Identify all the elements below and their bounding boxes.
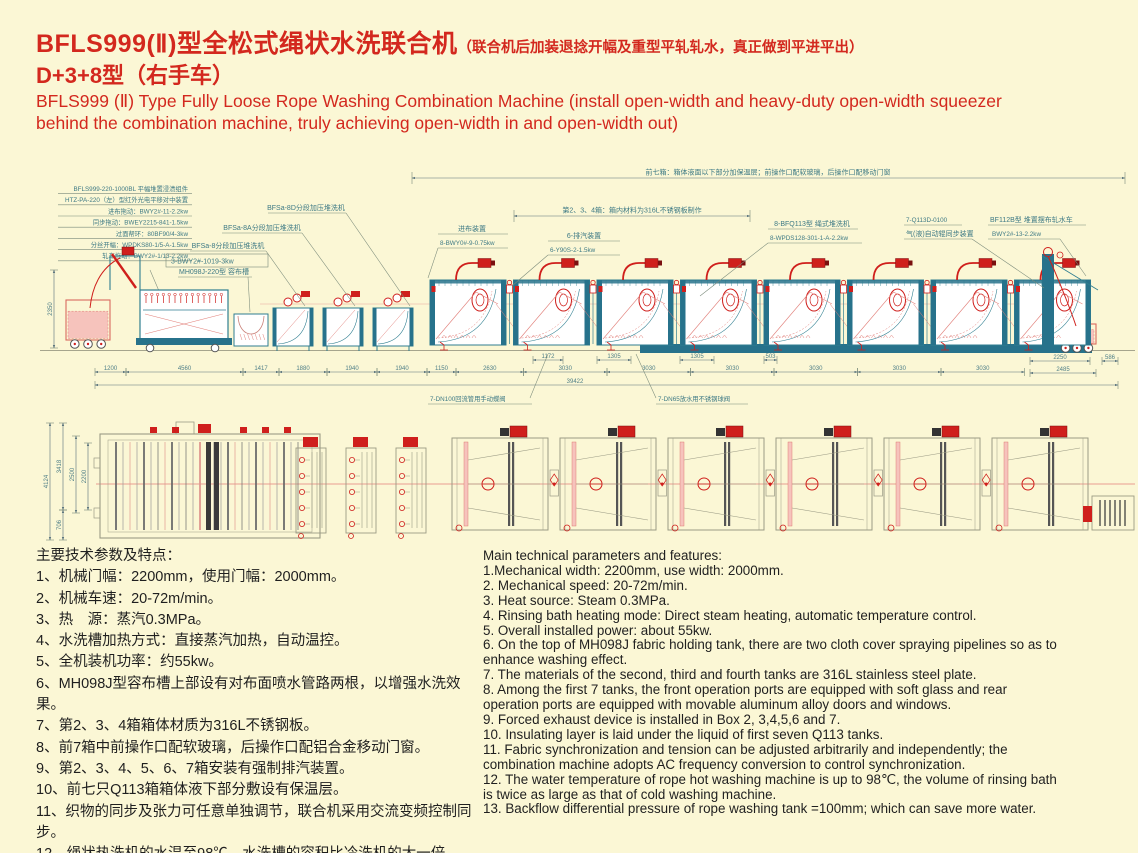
plan-valve [399, 505, 404, 510]
legend-stack: BFLS999-220-1000BL 平幅堆置浸渍组件HTZ-PA-220（左）… [58, 184, 192, 298]
exhaust-valve [674, 285, 680, 293]
dimension-value: 3030 [559, 366, 573, 372]
plan-rope [1008, 448, 1080, 460]
dimension-value: 2630 [483, 366, 497, 372]
title-zh-note: （联合机后加装退捻开幅及重型平轧轧水，真正做到平进平出） [457, 40, 863, 56]
plan-rope [468, 448, 540, 460]
exhaust-cap [925, 280, 929, 284]
squeezer-washer [373, 308, 413, 346]
valve [766, 286, 770, 292]
trolley-liquid [68, 311, 108, 338]
valve [432, 286, 436, 292]
note-tanks234: 第2、3、4箱：箱内材料为316L不锈钢板制作 [562, 206, 701, 215]
param-item-zh: 11、织物的同步及张力可任意单独调节，联合机采用交流变频控制同步。 [36, 802, 488, 845]
motor [122, 247, 134, 255]
legend-row: BFLS999-220-1000BL 平幅堆置浸渍组件 [73, 184, 188, 193]
plan-roller-pink [896, 442, 900, 526]
callout-bfsa8: BFSa-8分段加压堆洗机 [192, 241, 265, 250]
motor-cap [716, 428, 725, 436]
callout-paiqi: 6-排汽装置 [567, 231, 601, 240]
dimension-value: 1880 [296, 366, 310, 372]
motor-cap [608, 428, 617, 436]
dimension-value: 2485 [1056, 367, 1070, 373]
motor [303, 437, 318, 447]
motor [1083, 506, 1092, 522]
motor [262, 427, 269, 433]
machine-wheel [211, 344, 219, 352]
plan-bracket [94, 508, 100, 518]
washer-post [273, 308, 277, 346]
motor [1050, 426, 1067, 437]
leader-line [428, 248, 438, 278]
plan-rope [792, 508, 864, 520]
plan-roller-pink [464, 442, 468, 526]
tank-post [1002, 280, 1007, 345]
plan-roller-pink [572, 442, 576, 526]
motor [198, 424, 211, 433]
plan-washer [296, 448, 326, 533]
plan-roller-pink [788, 442, 792, 526]
tank-post [835, 280, 840, 345]
valve [1016, 286, 1020, 292]
page-title: BFLS999(Ⅱ)型全松式绳状水洗联合机（联合机后加装退捻开幅及重型平轧轧水，… [36, 24, 863, 60]
dimension-value: 3418 [57, 459, 63, 473]
valve [933, 286, 937, 292]
dimension-value: 1200 [104, 366, 118, 372]
plan-valve [349, 521, 354, 526]
squeezer-washer [273, 308, 313, 346]
motor [284, 427, 291, 433]
plan-pump [399, 534, 404, 539]
param-item-en: 3. Heat source: Steam 0.3MPa. [483, 594, 1063, 609]
fabric-trough [234, 314, 268, 346]
callout-bfsa8d: BFSa-8D分段加压堆洗机 [267, 203, 345, 212]
param-item-en: 9. Forced exhaust device is installed in… [483, 713, 1063, 728]
params-zh-list: 1、机械门幅：2200mm，使用门幅：2000mm。2、机械车速：20-72m/… [36, 567, 488, 853]
plan-valve [399, 521, 404, 526]
plan-valve [299, 473, 304, 478]
plan-rope [684, 448, 756, 460]
params-en: Main technical parameters and features: … [483, 549, 1063, 817]
plan-rope [684, 508, 756, 520]
callout-bfq113: 8-BFQ113型 绳式堆洗机 [774, 219, 850, 228]
param-item-zh: 3、热 源：蒸汽0.3MPa。 [36, 610, 488, 631]
machine-wheel [146, 344, 154, 352]
squeeze-roller [293, 294, 301, 302]
exhaust-valve [841, 285, 847, 293]
dimension-value: 39422 [567, 379, 584, 385]
plan-rope [792, 448, 864, 460]
plan-end-unit [1092, 496, 1134, 530]
exhaust-cap [841, 280, 845, 284]
plan-washer [346, 448, 376, 533]
callout-motor3: 3-BWY2#-1019-3kw [171, 259, 235, 266]
plan-dark-roller [206, 442, 211, 530]
valve [515, 286, 519, 292]
callout-bfq113-sub: 8-WPDS128-301-1-A-2.2kw [770, 235, 848, 242]
tank-post [585, 280, 590, 345]
washer-post [323, 308, 327, 346]
wheel-hub [100, 343, 102, 345]
title-zh: BFLS999(Ⅱ)型全松式绳状水洗联合机 [36, 30, 457, 58]
exhaust-cap [1008, 280, 1012, 284]
pulley [1057, 252, 1063, 258]
legend-row: 同步拖动：BWEY2215-841-1.5kw [93, 218, 189, 227]
tank-post [919, 280, 924, 345]
title-en: BFLS999 (Ⅱ) Type Fully Loose Rope Washin… [36, 90, 1036, 134]
plan-valve [349, 489, 354, 494]
plan-bracket [94, 458, 100, 468]
wheel-hub [74, 343, 76, 345]
plan-rope [576, 448, 648, 460]
motor-cap [825, 261, 829, 266]
plan-rope [1008, 508, 1080, 520]
callout-mh098j: MH098J-220型 容布槽 [179, 267, 249, 276]
steam-pipe [874, 263, 896, 280]
param-item-zh: 8、前7箱中前操作口配软玻璃，后操作口配铝合金移动门窗。 [36, 738, 488, 759]
plan-rope [576, 508, 648, 520]
dimension-value: 1305 [690, 354, 704, 360]
motor [301, 291, 310, 297]
plan-rope [900, 508, 972, 520]
technical-diagram: BFLS999-220-1000BL 平幅堆置浸渍组件HTZ-PA-220（左）… [0, 158, 1138, 550]
dimension-value: 1172 [542, 354, 556, 360]
motor-cap [824, 428, 833, 436]
motor [896, 259, 909, 268]
washer-post [373, 308, 377, 346]
subtitle-zh: D+3+8型（右手车） [36, 58, 234, 90]
param-item-zh: 2、机械车速：20-72m/min。 [36, 589, 488, 610]
param-item-zh: 1、机械门幅：2200mm，使用门幅：2000mm。 [36, 567, 488, 588]
plan-valve [299, 521, 304, 526]
plan-pump [349, 534, 354, 539]
tank-post [752, 280, 757, 345]
plan-valve [399, 457, 404, 462]
exhaust-cap [674, 280, 678, 284]
connector-dot [769, 483, 772, 486]
motor-cap [992, 261, 996, 266]
steam-pipe [623, 263, 645, 280]
plan-valve [399, 473, 404, 478]
dimension-value: 1940 [345, 366, 359, 372]
param-item-en: 2. Mechanical speed: 20-72m/min. [483, 579, 1063, 594]
param-item-en: 8. Among the first 7 tanks, the front op… [483, 683, 1063, 713]
motor [729, 259, 742, 268]
leader-line [266, 251, 305, 306]
motor [478, 259, 491, 268]
wheel-hub [87, 343, 89, 345]
plan-roller-pink [1004, 442, 1008, 526]
dimension-value: 503 [765, 354, 776, 360]
param-item-zh: 4、水洗槽加热方式：直接蒸汽加热，自动温控。 [36, 631, 488, 652]
dimension-value: 3030 [642, 366, 656, 372]
dimension-value: 4560 [178, 366, 192, 372]
motor [645, 259, 658, 268]
motor [942, 426, 959, 437]
motor-cap [1040, 428, 1049, 436]
motor [834, 426, 851, 437]
squeeze-roller [334, 298, 342, 306]
connector-dot [553, 483, 556, 486]
dimension-value: 586 [1105, 355, 1116, 361]
motor [618, 426, 635, 437]
param-item-zh: 12、绳状热洗机的水温至98℃，水洗槽的容积比冷洗机的大一倍。 [36, 844, 488, 853]
dimension-value: 4124 [44, 474, 50, 488]
param-item-en: 6. On the top of MH098J fabric holding t… [483, 638, 1063, 668]
steam-pipe [540, 263, 562, 280]
param-item-en: 11. Fabric synchronization and tension c… [483, 743, 1063, 773]
tank-post [501, 280, 506, 345]
valve [682, 286, 686, 292]
leader-line [248, 277, 250, 312]
motor-cap [575, 261, 579, 266]
params-en-list: 1.Mechanical width: 2200mm, use width: 2… [483, 564, 1063, 817]
dimension-value: 2250 [1053, 355, 1067, 361]
catalog-page: BFLS999(Ⅱ)型全松式绳状水洗联合机（联合机后加装退捻开幅及重型平轧轧水，… [0, 0, 1138, 853]
param-item-en: 12. The water temperature of rope hot wa… [483, 773, 1063, 803]
motor [353, 437, 368, 447]
end-frame-column [1042, 254, 1054, 346]
motor [401, 291, 410, 297]
motor-cap [909, 261, 913, 266]
param-item-zh: 7、第2、3、4箱箱体材质为316L不锈钢板。 [36, 716, 488, 737]
plan-valve [349, 457, 354, 462]
legend-row: 过面帮环：80BF90/4-3kw [116, 229, 189, 238]
dimension-value: 3030 [976, 366, 990, 372]
params-zh: 主要技术参数及特点： 1、机械门幅：2200mm，使用门幅：2000mm。2、机… [36, 546, 488, 853]
dimension-value: 1305 [607, 354, 621, 360]
param-item-en: 5. Overall installed power: about 55kw. [483, 624, 1063, 639]
motor [403, 437, 418, 447]
leader-line [636, 354, 656, 398]
motor [351, 291, 360, 297]
plan-roller-pink [680, 442, 684, 526]
valve [849, 286, 853, 292]
dimension-value: 706 [57, 519, 63, 530]
steam-pipe [707, 263, 729, 280]
motor [726, 426, 743, 437]
wheel-hub [1087, 347, 1089, 349]
exhaust-valve [1008, 285, 1014, 293]
callout-bf112b-sub: BWY2#-13-2.2kw [992, 231, 1041, 238]
washer-post [360, 308, 364, 346]
callout-bfsa8a: BFSa-8A分段加压堆洗机 [223, 223, 300, 232]
motor [240, 427, 247, 433]
exhaust-valve [757, 285, 763, 293]
motor [1063, 259, 1076, 268]
plan-valve [399, 489, 404, 494]
param-item-en: 13. Backflow differential pressure of ro… [483, 802, 1063, 817]
motor [812, 259, 825, 268]
washer-post [410, 308, 414, 346]
exhaust-valve [507, 285, 513, 293]
dimension-value: 1417 [254, 366, 268, 372]
param-item-zh: 9、第2、3、4、5、6、7箱安装有强制排汽装置。 [36, 759, 488, 780]
param-item-en: 7. The materials of the second, third an… [483, 668, 1063, 683]
dimension-value: 2500 [70, 467, 76, 481]
wheel-hub [1076, 347, 1078, 349]
legend-row: HTZ-PA-220（左）型红外光电平移对中装置 [65, 195, 188, 204]
legend-row: 进布拖动：BWY2#-11-2.2kw [108, 206, 188, 215]
param-item-zh: 5、全机装机功率：约55kw。 [36, 652, 488, 673]
param-item-zh: 10、前七只Q113箱箱体液下部分敷设有保温层。 [36, 780, 488, 801]
connector-dot [877, 483, 880, 486]
motor [979, 259, 992, 268]
tank-post [668, 280, 673, 345]
callout-q113d: 7-Q113D-0100 [906, 217, 948, 224]
plan-valve [299, 489, 304, 494]
dimension-value: 2350 [48, 302, 54, 316]
dimension-value: 3030 [809, 366, 823, 372]
exhaust-valve [924, 285, 930, 293]
params-en-heading: Main technical parameters and features: [483, 549, 1063, 564]
exhaust-cap [758, 280, 762, 284]
dimension-value: 2200 [82, 469, 88, 483]
squeeze-roller [393, 294, 401, 302]
exhaust-cap [507, 280, 511, 284]
callout-bf112b: BF112B型 堆置摆布轧水车 [990, 215, 1073, 224]
washer-post [310, 308, 314, 346]
callout-jinbu-sub: 8-BWY0#-9-0.75kw [440, 240, 495, 247]
note-front7: 前七箱：箱体液面以下部分加保温层；前操作口配软玻璃，后操作口配移动门窗 [646, 168, 891, 177]
motor [172, 427, 179, 433]
dimension-value: 3030 [893, 366, 907, 372]
plan-dark-roller [214, 442, 219, 530]
plan-valve [349, 473, 354, 478]
wheel-hub [1064, 347, 1066, 349]
motor-cap [932, 428, 941, 436]
exhaust-valve [590, 285, 596, 293]
plan-rope [468, 508, 540, 520]
motor [562, 259, 575, 268]
valve [599, 286, 603, 292]
motor-cap [491, 261, 495, 266]
motor [150, 427, 157, 433]
motor-cap [500, 428, 509, 436]
connector-dot [661, 483, 664, 486]
leader-line [1060, 239, 1086, 276]
callout-paiqi-sub: 6-Y90S-2-1.5kw [550, 247, 596, 254]
plan-valve [299, 457, 304, 462]
steam-pipe [957, 263, 979, 280]
steam-pipe [456, 263, 478, 280]
dimension-value: 1150 [435, 366, 449, 372]
dimension-value: 3030 [726, 366, 740, 372]
squeeze-roller [284, 298, 292, 306]
motor [510, 426, 527, 437]
exhaust-cap [591, 280, 595, 284]
param-item-en: 1.Mechanical width: 2200mm, use width: 2… [483, 564, 1063, 579]
squeeze-roller [384, 298, 392, 306]
param-item-zh: 6、MH098J型容布槽上部设有对布面喷水管路两根，以增强水洗效果。 [36, 674, 488, 717]
params-zh-heading: 主要技术参数及特点： [36, 546, 488, 567]
motor-cap [1076, 261, 1080, 266]
squeezer-washer [323, 308, 363, 346]
callout-dn100: 7-DN100回流管用手动蝶阀 [430, 394, 506, 403]
callout-dn65: 7-DN65放水用不锈钢球阀 [658, 394, 730, 403]
plan-washer [396, 448, 426, 533]
plan-rope [900, 448, 972, 460]
param-item-en: 4. Rinsing bath heating mode: Direct ste… [483, 609, 1063, 624]
param-item-en: 10. Insulating layer is laid under the l… [483, 728, 1063, 743]
plan-valve [349, 505, 354, 510]
plan-valve [299, 505, 304, 510]
legend-row: 分丝开幅：WPDKS80-1/5-A-1.5kw [91, 240, 189, 249]
plan-view [94, 422, 1135, 539]
tank-post [1086, 280, 1091, 345]
dimension-value: 1940 [395, 366, 409, 372]
callout-q113d-sub: 气(液)自动辊同步装置 [906, 229, 974, 238]
connector-dot [985, 483, 988, 486]
callout-jinbu: 进布装置 [458, 224, 486, 233]
steam-pipe [790, 263, 812, 280]
motor-cap [658, 261, 662, 266]
